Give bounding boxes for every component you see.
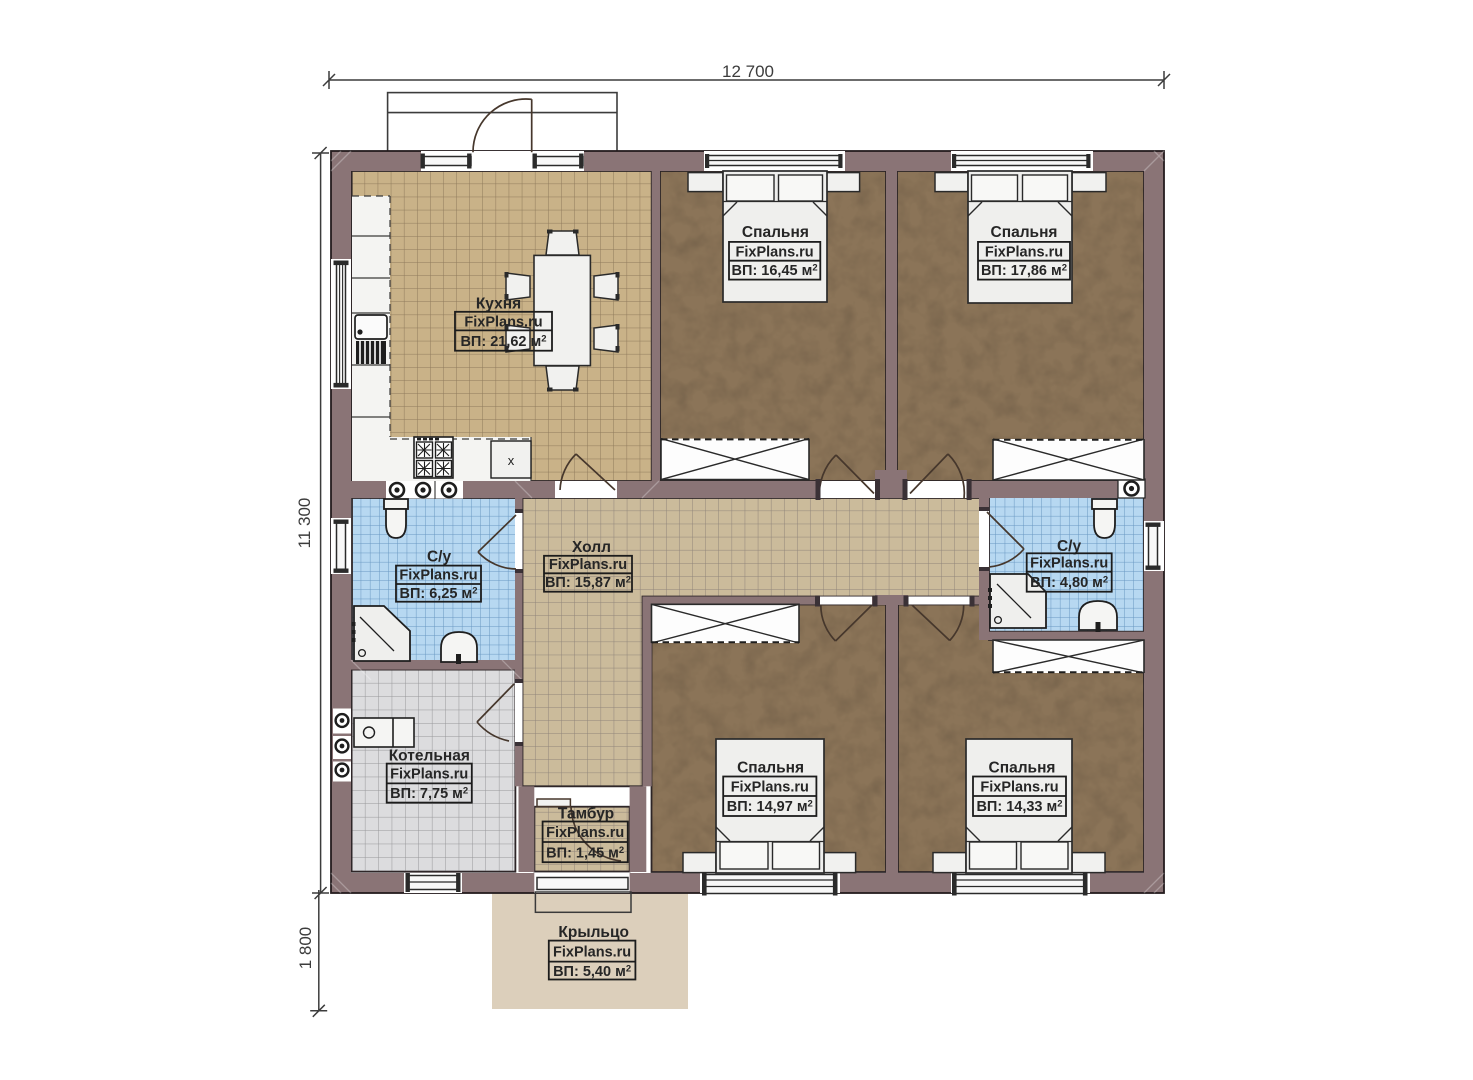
svg-text:Котельная: Котельная bbox=[389, 748, 470, 765]
svg-text:ВП: 14,97 м2: ВП: 14,97 м2 bbox=[727, 799, 813, 816]
svg-text:ВП: 15,87 м2: ВП: 15,87 м2 bbox=[545, 575, 631, 592]
svg-text:Кухня: Кухня bbox=[476, 296, 521, 313]
svg-text:x: x bbox=[508, 453, 515, 468]
svg-text:Спальня: Спальня bbox=[991, 224, 1058, 241]
svg-text:FixPlans.ru: FixPlans.ru bbox=[736, 244, 814, 260]
svg-text:FixPlans.ru: FixPlans.ru bbox=[464, 314, 542, 330]
svg-text:ВП: 17,86 м2: ВП: 17,86 м2 bbox=[981, 263, 1067, 280]
svg-text:FixPlans.ru: FixPlans.ru bbox=[399, 568, 477, 584]
svg-text:ВП: 4,80 м2: ВП: 4,80 м2 bbox=[1030, 574, 1108, 591]
svg-text:FixPlans.ru: FixPlans.ru bbox=[549, 557, 627, 573]
svg-text:ВП: 6,25 м2: ВП: 6,25 м2 bbox=[399, 585, 477, 602]
svg-text:Спальня: Спальня bbox=[989, 760, 1056, 777]
svg-text:Спальня: Спальня bbox=[742, 224, 809, 241]
svg-text:ВП: 16,45 м2: ВП: 16,45 м2 bbox=[732, 263, 818, 280]
svg-text:Спальня: Спальня bbox=[737, 760, 804, 777]
svg-text:ВП: 14,33 м2: ВП: 14,33 м2 bbox=[976, 799, 1062, 816]
svg-text:FixPlans.ru: FixPlans.ru bbox=[980, 779, 1058, 795]
svg-text:ВП: 7,75 м2: ВП: 7,75 м2 bbox=[390, 786, 468, 803]
svg-text:FixPlans.ru: FixPlans.ru bbox=[553, 944, 631, 960]
svg-text:ВП: 1,45 м2: ВП: 1,45 м2 bbox=[546, 845, 624, 862]
svg-text:FixPlans.ru: FixPlans.ru bbox=[985, 244, 1063, 260]
svg-text:FixPlans.ru: FixPlans.ru bbox=[731, 779, 809, 795]
svg-text:FixPlans.ru: FixPlans.ru bbox=[546, 825, 624, 841]
svg-text:Тамбур: Тамбур bbox=[558, 806, 614, 823]
svg-text:11 300: 11 300 bbox=[295, 498, 314, 549]
svg-text:Холл: Холл bbox=[572, 539, 611, 556]
svg-text:ВП: 5,40 м2: ВП: 5,40 м2 bbox=[553, 964, 631, 981]
svg-text:Крыльцо: Крыльцо bbox=[558, 924, 629, 941]
svg-text:С/у: С/у bbox=[427, 549, 452, 566]
svg-text:ВП: 21,62 м2: ВП: 21,62 м2 bbox=[460, 333, 546, 350]
svg-text:1 800: 1 800 bbox=[296, 927, 315, 970]
svg-text:FixPlans.ru: FixPlans.ru bbox=[390, 767, 468, 783]
svg-text:12 700: 12 700 bbox=[722, 62, 774, 81]
svg-text:FixPlans.ru: FixPlans.ru bbox=[1030, 556, 1108, 572]
